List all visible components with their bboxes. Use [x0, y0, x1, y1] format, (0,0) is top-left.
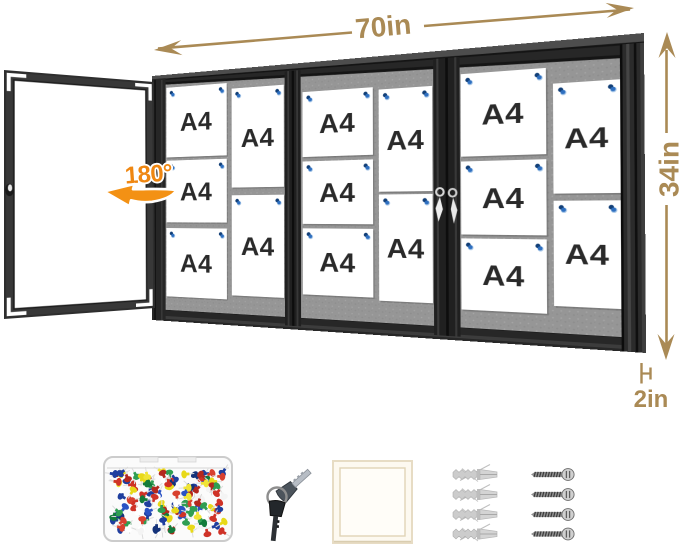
svg-text:2in: 2in: [634, 386, 669, 413]
svg-text:34in: 34in: [654, 141, 679, 197]
svg-text:70in: 70in: [354, 9, 413, 45]
